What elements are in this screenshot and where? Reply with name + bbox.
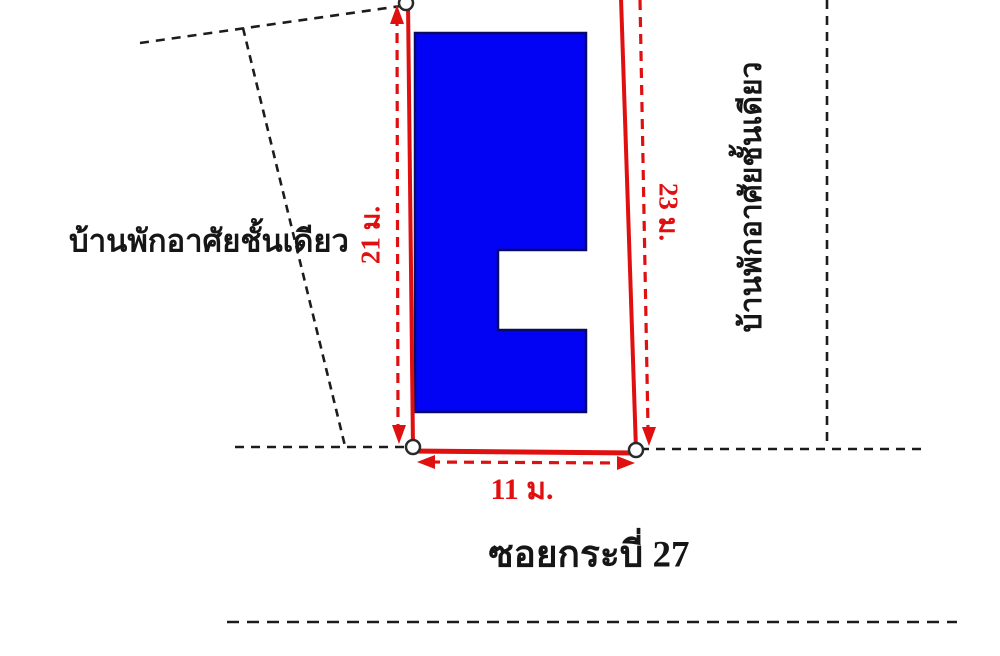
dimension-arrow-south-right: [617, 456, 635, 470]
dimension-line-south: [430, 462, 622, 463]
left-neighbor-building-label: บ้านพักอาศัยชั้นเดียว: [69, 226, 349, 257]
dimension-label-east: 23 ม.: [655, 183, 682, 241]
neighbor-boundary-northwest-dashed-line: [140, 6, 401, 43]
building-footprint: [415, 33, 586, 412]
plot-boundary-west-line: [408, 2, 413, 448]
dimension-label-west: 21 ม.: [358, 206, 385, 264]
dimension-arrow-west-down: [392, 425, 406, 444]
plot-boundary-south-line: [411, 451, 638, 453]
boundary-vertex-marker-southwest: [406, 440, 420, 454]
dimension-label-south: 11 ม.: [490, 475, 553, 505]
right-neighbor-building-label: บ้านพักอาศัยชั้นเดียว: [737, 62, 767, 333]
boundary-vertex-marker-southeast: [629, 443, 643, 457]
land-plot-sketch: บ้านพักอาศัยชั้นเดียว บ้านพักอาศัยชั้นเด…: [0, 0, 1000, 656]
road-name-label: ซอยกระบี่ 27: [489, 537, 690, 574]
dimension-line-west: [397, 16, 398, 430]
plot-boundary-east-line: [621, 0, 636, 450]
dimension-arrow-south-left: [417, 455, 435, 469]
dimension-arrow-east-down: [642, 427, 656, 446]
boundary-vertex-marker-north: [399, 0, 413, 10]
dimension-line-east: [640, 0, 648, 428]
